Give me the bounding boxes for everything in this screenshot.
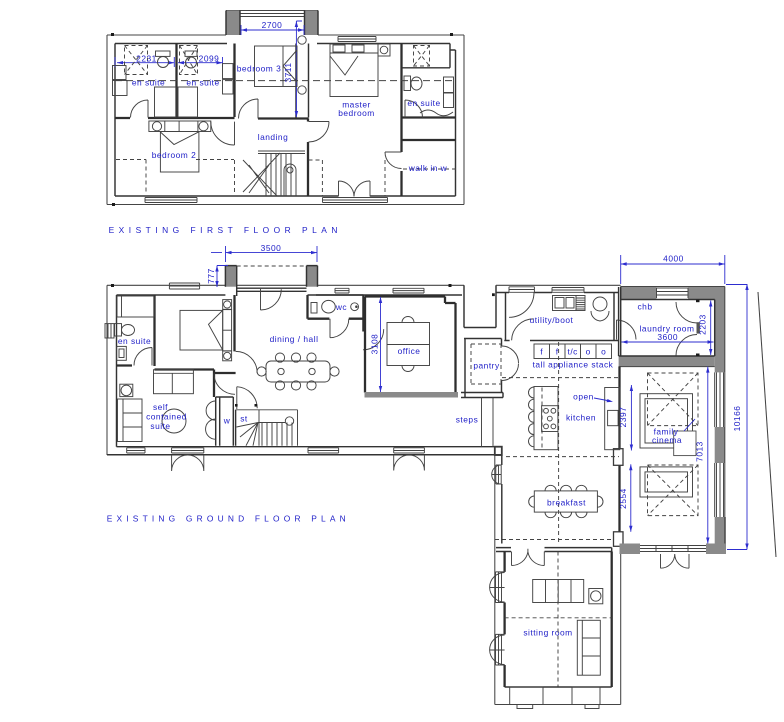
svg-text:2231: 2231 [136, 54, 157, 64]
svg-text:EXISTING GROUND FLOOR PLAN: EXISTING GROUND FLOOR PLAN [107, 514, 350, 524]
svg-text:en suite: en suite [132, 78, 165, 88]
svg-text:3108: 3108 [370, 334, 380, 355]
svg-text:office: office [398, 346, 421, 356]
svg-text:3711: 3711 [283, 62, 293, 82]
svg-text:dining / hall: dining / hall [270, 334, 319, 344]
svg-text:kitchen: kitchen [566, 413, 596, 423]
svg-text:2700: 2700 [262, 20, 283, 30]
svg-text:o: o [601, 347, 606, 357]
svg-text:4000: 4000 [663, 254, 684, 264]
svg-text:3500: 3500 [261, 243, 282, 253]
svg-text:suite: suite [150, 421, 170, 431]
svg-text:3600: 3600 [657, 332, 678, 342]
svg-text:wc: wc [335, 302, 347, 312]
svg-text:contained: contained [146, 412, 187, 422]
svg-text:pantry: pantry [473, 361, 500, 371]
svg-text:tall appliance stack: tall appliance stack [533, 360, 614, 370]
svg-text:777: 777 [206, 268, 216, 283]
svg-text:w: w [223, 416, 231, 426]
svg-text:en suite: en suite [118, 336, 151, 346]
svg-text:2397: 2397 [618, 407, 628, 428]
svg-text:sitting room: sitting room [523, 628, 572, 638]
svg-text:utility/boot: utility/boot [530, 315, 574, 325]
svg-text:EXISTING FIRST FLOOR PLAN: EXISTING FIRST FLOOR PLAN [109, 225, 342, 235]
svg-text:2203: 2203 [698, 314, 708, 335]
svg-text:bedroom 2: bedroom 2 [152, 150, 197, 160]
svg-text:bedroom: bedroom [338, 108, 375, 118]
svg-text:7013: 7013 [695, 441, 705, 462]
svg-text:t/c: t/c [568, 347, 578, 357]
svg-text:cinema: cinema [652, 435, 682, 445]
svg-text:landing: landing [258, 132, 289, 142]
svg-text:bedroom 3: bedroom 3 [237, 64, 282, 74]
svg-text:steps: steps [456, 415, 479, 425]
svg-text:en suite: en suite [407, 98, 440, 108]
svg-text:breakfast: breakfast [547, 498, 586, 508]
svg-text:self: self [153, 402, 168, 412]
svg-text:chb: chb [637, 302, 652, 312]
svg-text:open: open [573, 392, 594, 402]
svg-text:en suite: en suite [186, 78, 219, 88]
svg-text:f: f [540, 347, 543, 357]
svg-text:10166: 10166 [732, 406, 742, 432]
svg-text:st: st [240, 414, 248, 424]
svg-text:o: o [586, 347, 591, 357]
svg-text:2554: 2554 [618, 488, 628, 509]
svg-text:walk in w: walk in w [408, 163, 448, 173]
svg-text:2099: 2099 [199, 54, 220, 64]
